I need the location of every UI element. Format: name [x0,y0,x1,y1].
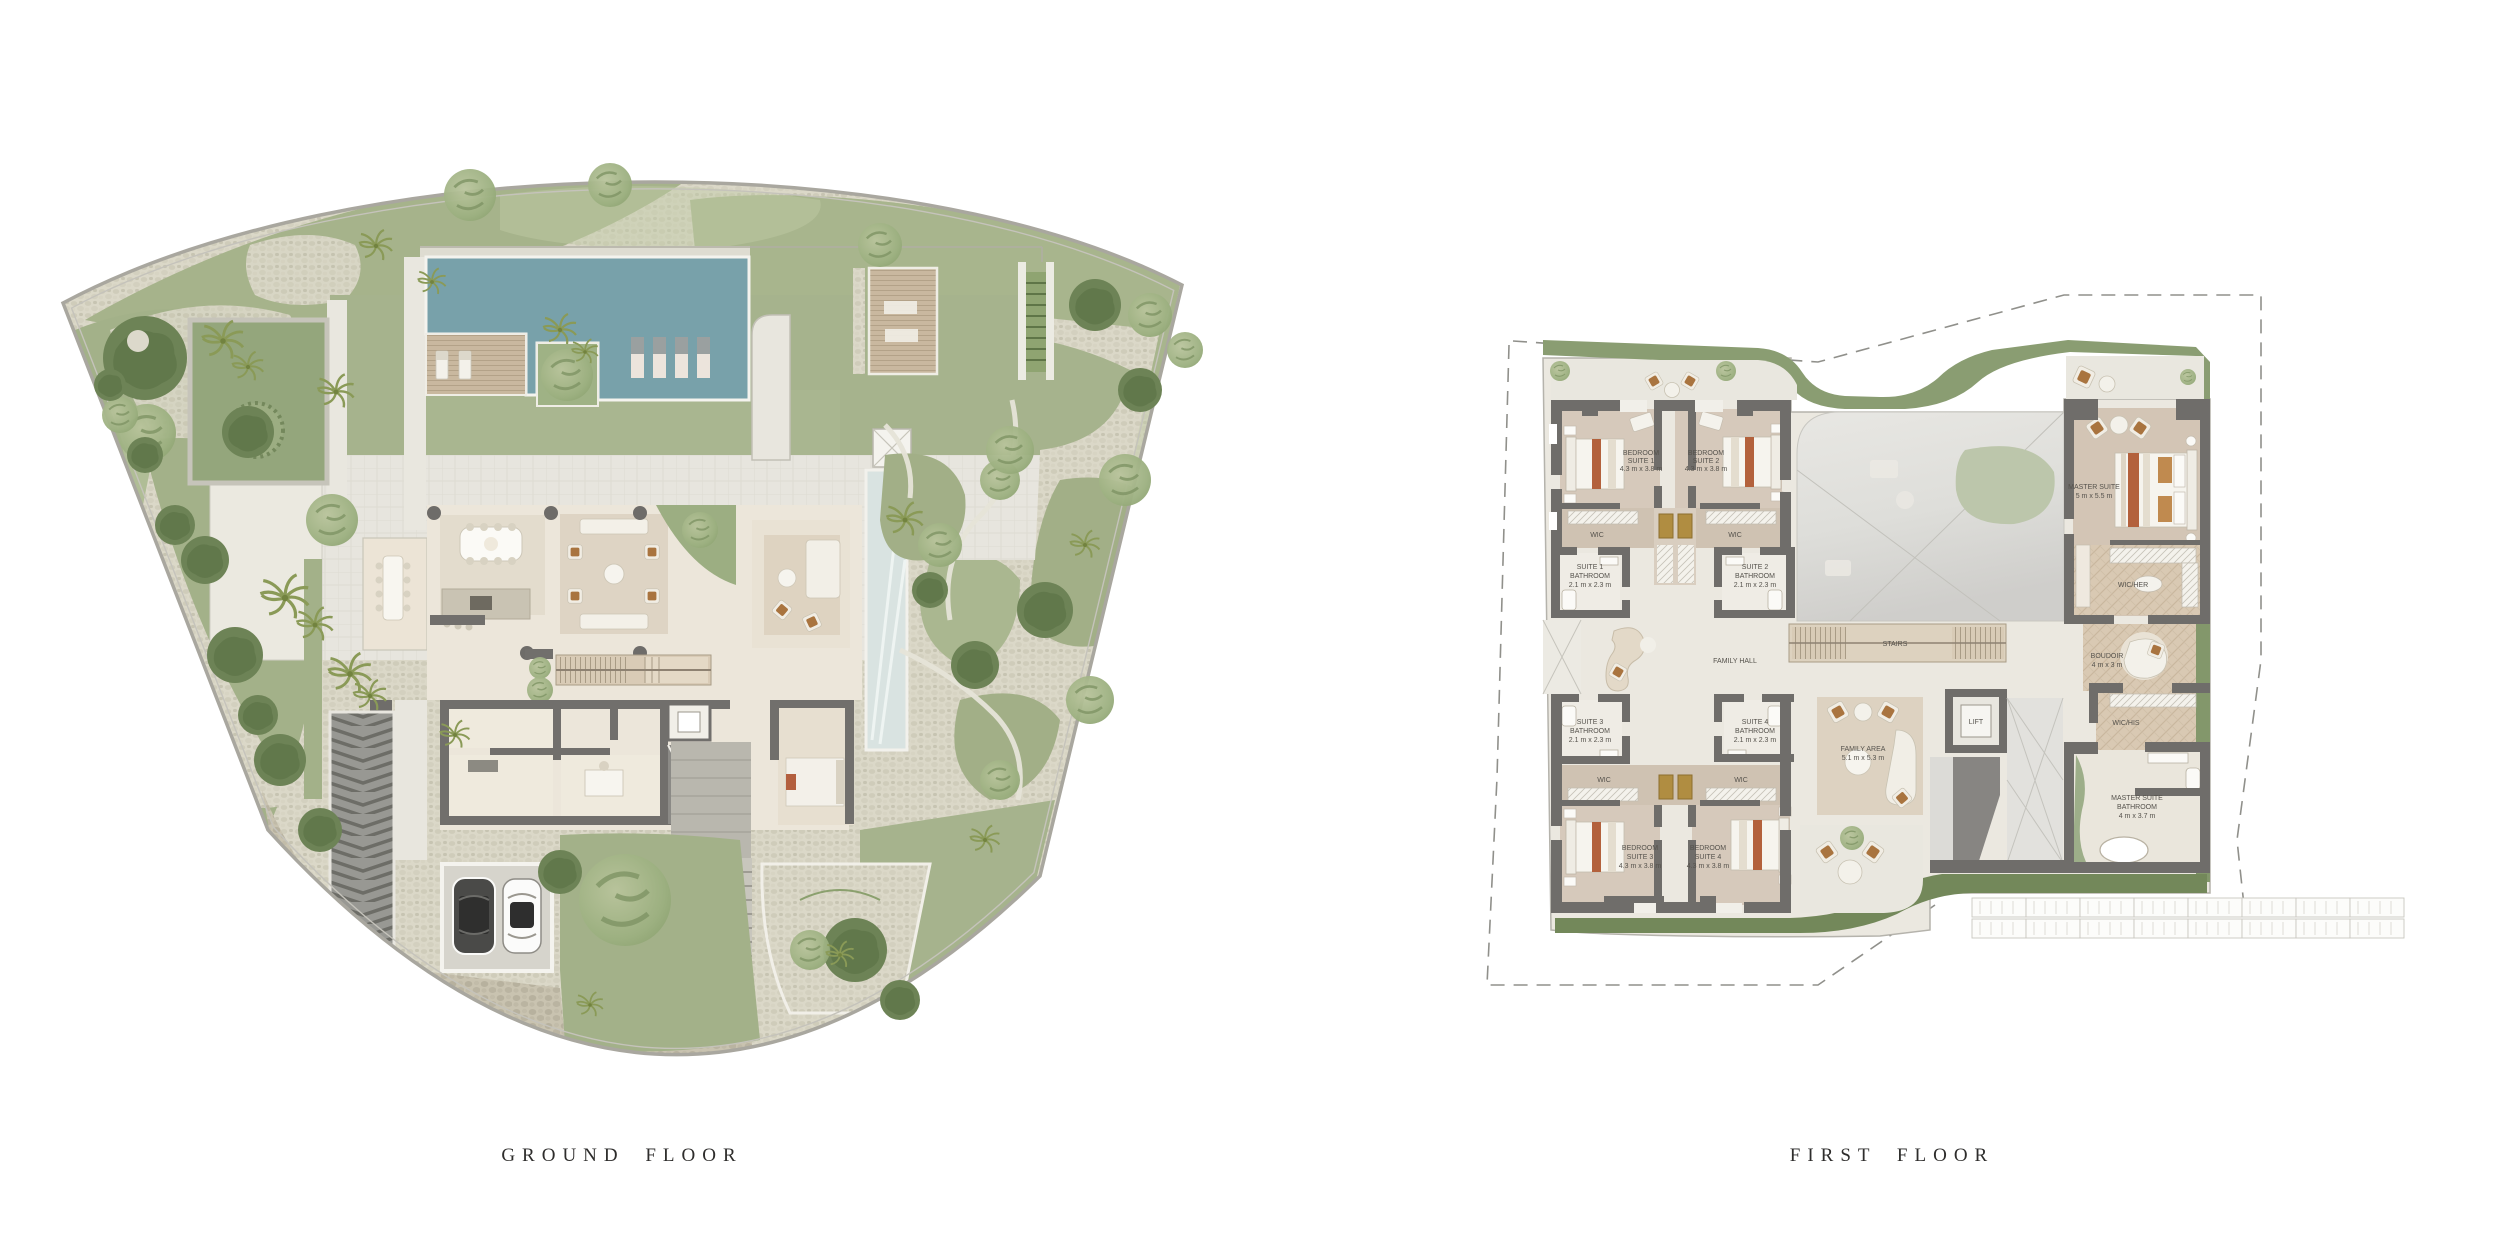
svg-text:BATHROOM: BATHROOM [1735,728,1775,735]
svg-text:SUITE 4: SUITE 4 [1695,854,1722,861]
svg-text:4 m x 3.7 m: 4 m x 3.7 m [2119,813,2156,820]
svg-text:2.1 m x 2.3 m: 2.1 m x 2.3 m [1569,737,1612,744]
svg-text:4.3 m x 3.8 m: 4.3 m x 3.8 m [1687,863,1730,870]
svg-text:LIFT: LIFT [1969,719,1984,726]
svg-text:4.3 m x 3.8 m: 4.3 m x 3.8 m [1685,466,1728,473]
svg-text:SUITE 2: SUITE 2 [1742,564,1769,571]
svg-text:2.1 m x 2.3 m: 2.1 m x 2.3 m [1734,582,1777,589]
svg-text:WIC: WIC [1590,532,1604,539]
svg-text:BATHROOM: BATHROOM [2117,804,2157,811]
svg-text:SUITE 3: SUITE 3 [1577,719,1604,726]
svg-text:MASTER SUITE: MASTER SUITE [2068,484,2120,491]
svg-text:5.1 m x 5.3 m: 5.1 m x 5.3 m [1842,755,1885,762]
svg-text:5 m x 5.5 m: 5 m x 5.5 m [2076,493,2113,500]
svg-text:2.1 m x 2.3 m: 2.1 m x 2.3 m [1569,582,1612,589]
svg-text:4.3 m x 3.8 m: 4.3 m x 3.8 m [1619,863,1662,870]
svg-text:GROUND FLOOR: GROUND FLOOR [501,1145,742,1166]
svg-text:SUITE 3: SUITE 3 [1627,854,1654,861]
svg-text:2.1 m x 2.3 m: 2.1 m x 2.3 m [1734,737,1777,744]
svg-text:BEDROOM: BEDROOM [1690,845,1726,852]
svg-text:BEDROOM: BEDROOM [1622,845,1658,852]
svg-text:BATHROOM: BATHROOM [1570,573,1610,580]
svg-text:MASTER SUITE: MASTER SUITE [2111,795,2163,802]
svg-text:BEDROOM: BEDROOM [1623,450,1659,457]
svg-text:WIC: WIC [1728,532,1742,539]
svg-text:FAMILY AREA: FAMILY AREA [1841,746,1886,753]
svg-text:SUITE 4: SUITE 4 [1742,719,1769,726]
svg-text:WIC: WIC [1597,777,1611,784]
svg-text:4.3 m x 3.8 m: 4.3 m x 3.8 m [1620,466,1663,473]
svg-text:WIC/HER: WIC/HER [2118,582,2148,589]
svg-text:FAMILY HALL: FAMILY HALL [1713,658,1757,665]
svg-text:STAIRS: STAIRS [1883,641,1908,648]
svg-text:BEDROOM: BEDROOM [1688,450,1724,457]
svg-text:WIC: WIC [1734,777,1748,784]
svg-text:BATHROOM: BATHROOM [1570,728,1610,735]
svg-text:SUITE 2: SUITE 2 [1693,458,1720,465]
svg-text:BOUDOIR: BOUDOIR [2091,653,2124,660]
svg-text:WIC/HIS: WIC/HIS [2112,720,2140,727]
svg-text:SUITE 1: SUITE 1 [1628,458,1655,465]
svg-text:FIRST FLOOR: FIRST FLOOR [1790,1145,1994,1166]
svg-text:4 m x 3 m: 4 m x 3 m [2092,662,2123,669]
svg-text:SUITE 1: SUITE 1 [1577,564,1604,571]
svg-text:BATHROOM: BATHROOM [1735,573,1775,580]
